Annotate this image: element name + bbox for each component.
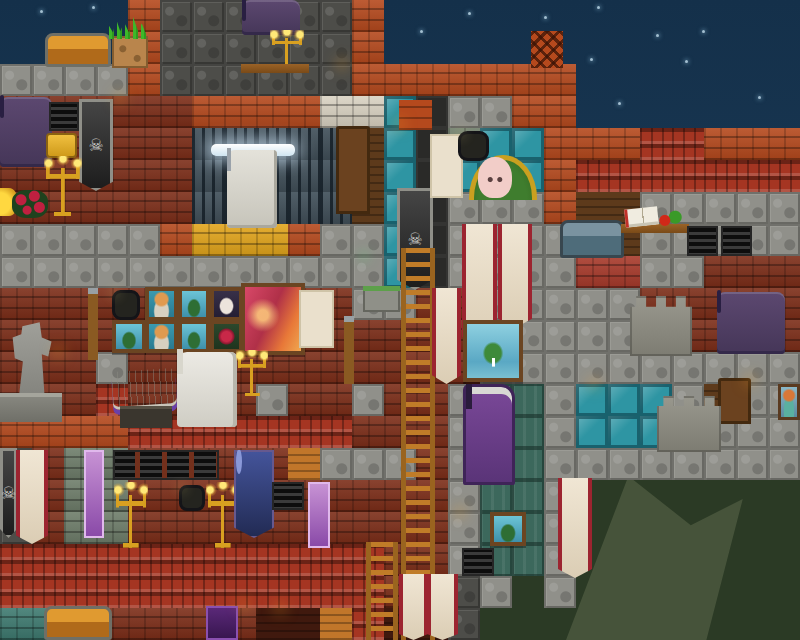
painting-floating-island xyxy=(463,320,523,382)
tile-brick-dark-red xyxy=(160,128,192,160)
tile-stone-block xyxy=(576,288,608,320)
tile-block-red xyxy=(576,256,608,288)
star-11 xyxy=(758,96,761,99)
wall-candelabra-mid xyxy=(236,350,268,396)
tile-stone-block xyxy=(0,224,32,256)
tile-stone-block xyxy=(544,256,576,288)
wooden-chest-bottom[interactable] xyxy=(44,606,112,640)
tile-stone-block xyxy=(0,256,32,288)
tile-stone-block xyxy=(576,448,608,480)
chimney-lattice xyxy=(531,31,563,68)
tile-gold-block xyxy=(224,224,256,256)
workshop-stool xyxy=(275,194,303,226)
tile-roof-shingles xyxy=(640,128,672,160)
tile-cobble-dark xyxy=(192,0,224,32)
tile-wood-beam xyxy=(288,448,320,480)
tile-brick-dark-red xyxy=(288,384,320,416)
tile-gold-block xyxy=(192,224,224,256)
tile-stone-block xyxy=(736,192,768,224)
npc-engineer[interactable] xyxy=(184,164,228,224)
tile-cobble-dark xyxy=(160,32,192,64)
tech-banner-2 xyxy=(308,482,330,548)
rune-banner-1 xyxy=(432,288,461,384)
tile-roof-shingles xyxy=(288,576,320,608)
machine-stand xyxy=(120,406,172,428)
tile-panel-teal xyxy=(512,480,544,512)
torch-bottom-2 xyxy=(280,608,300,640)
glow-mushroom xyxy=(364,256,396,292)
painting-island-1 xyxy=(178,287,210,321)
tile-stone-block xyxy=(544,448,576,480)
tile-stone-block xyxy=(608,448,640,480)
tile-brick-orange xyxy=(480,64,512,96)
tile-brick-orange xyxy=(512,64,544,96)
torch-right-wall xyxy=(750,380,776,420)
dining-chair-left xyxy=(203,46,233,98)
tile-roof-shingles xyxy=(672,128,704,160)
tile-roof-shingles xyxy=(0,544,32,576)
tile-roof-shingles xyxy=(32,576,64,608)
tile-brick-orange xyxy=(576,128,608,160)
tile-stone-block xyxy=(480,576,512,608)
tile-brick-teal xyxy=(0,608,32,640)
tile-gold-block xyxy=(256,224,288,256)
tile-brick-orange xyxy=(608,128,640,160)
tile-roof-shingles xyxy=(96,544,128,576)
tile-brick-orange xyxy=(544,96,576,128)
tile-stone-block xyxy=(576,352,608,384)
tile-cobble-dark xyxy=(160,0,192,32)
torch-dining xyxy=(342,64,366,100)
tile-roof-shingles xyxy=(672,160,704,192)
tile-window-bars xyxy=(288,160,320,192)
tile-panel-teal xyxy=(512,384,544,416)
vent-row xyxy=(113,450,219,480)
tile-stone-block xyxy=(352,448,384,480)
tile-brick-orange xyxy=(160,224,192,256)
star-9 xyxy=(618,102,621,105)
tile-roof-shingles xyxy=(320,544,352,576)
table-candelabra xyxy=(270,30,304,68)
stone-tower-lower xyxy=(657,396,721,452)
tile-roof-shingles xyxy=(736,160,768,192)
tile-stone-block xyxy=(128,256,160,288)
tile-wood-beam xyxy=(320,608,352,640)
tile-stone-block xyxy=(544,320,576,352)
tile-stone-block xyxy=(768,224,800,256)
tile-brick-orange xyxy=(352,32,384,64)
tile-brick-orange xyxy=(544,128,576,160)
tile-roof-shingles xyxy=(96,576,128,608)
tile-brick-dark-red xyxy=(0,288,32,320)
tile-stone-block xyxy=(768,192,800,224)
air-vent-3 xyxy=(721,226,752,256)
tech-banner-1 xyxy=(84,450,104,538)
gold-sign xyxy=(46,133,77,158)
tile-roof-shingles xyxy=(320,576,352,608)
tile-brick-dark-red xyxy=(352,352,384,384)
tile-brick-dark-red xyxy=(96,192,128,224)
tile-stone-block xyxy=(640,352,672,384)
tile-brick-dark-red xyxy=(352,416,384,448)
tile-stone-block xyxy=(96,64,128,96)
tile-stone-block xyxy=(32,224,64,256)
tile-brick-orange xyxy=(64,416,96,448)
tile-stone-block xyxy=(128,224,160,256)
tile-roof-shingles xyxy=(288,416,320,448)
tile-block-red xyxy=(608,256,640,288)
tile-brick-dark-red xyxy=(160,608,192,640)
tile-panel-teal xyxy=(512,416,544,448)
air-vent-2 xyxy=(687,226,718,256)
wall-candelabra-left xyxy=(44,156,82,216)
tile-stone-block xyxy=(544,576,576,608)
tile-stone-block xyxy=(64,224,96,256)
tile-brick-dark-red xyxy=(352,512,384,544)
painting-portrait-1 xyxy=(145,287,178,321)
dirt-block xyxy=(112,36,148,68)
tile-roof-shingles xyxy=(64,544,96,576)
tile-stone-block xyxy=(96,256,128,288)
painting-island-small xyxy=(490,512,526,546)
purple-banner-small xyxy=(206,606,238,640)
tile-stone-block xyxy=(32,256,64,288)
tile-roof-shingles xyxy=(128,544,160,576)
navigation-console[interactable] xyxy=(177,352,237,427)
tile-roof-shingles xyxy=(32,544,64,576)
tile-stone-block xyxy=(608,352,640,384)
torch-statue xyxy=(58,352,80,386)
tile-cobble-dark xyxy=(160,64,192,96)
tile-stone-block xyxy=(352,384,384,416)
air-vent-4 xyxy=(272,482,304,510)
wooden-chest-top[interactable] xyxy=(45,33,111,67)
tile-brick-dark-red xyxy=(128,192,160,224)
tile-roof-shingles xyxy=(576,160,608,192)
wall-tv-big[interactable] xyxy=(717,292,785,354)
painting-rose xyxy=(210,320,243,353)
tile-brick-orange xyxy=(128,64,160,96)
tile-roof-shingles xyxy=(192,576,224,608)
star-6 xyxy=(597,6,600,9)
tile-stone-block xyxy=(736,448,768,480)
dining-table xyxy=(241,64,309,98)
stone-tower-upper xyxy=(630,296,692,356)
tile-stone-block xyxy=(544,416,576,448)
open-book xyxy=(624,206,659,227)
tile-stone-block xyxy=(576,320,608,352)
tile-brick-orange xyxy=(352,0,384,32)
ladder-short[interactable] xyxy=(366,542,398,640)
tile-roof-shingles xyxy=(224,544,256,576)
tile-stone-block xyxy=(352,224,384,256)
pet-bunny[interactable] xyxy=(478,157,512,198)
sawhorse-table-left[interactable] xyxy=(141,512,209,548)
tile-panel-teal xyxy=(512,544,544,576)
tile-roof-shingles xyxy=(256,544,288,576)
tile-stone-block xyxy=(64,256,96,288)
wooden-door-upper[interactable] xyxy=(336,126,370,214)
tile-stone-block xyxy=(672,448,704,480)
fruit-and-plant xyxy=(657,210,683,226)
tile-stone-block xyxy=(768,416,800,448)
hook-pole-2 xyxy=(344,316,354,384)
tile-roof-shingles xyxy=(0,576,32,608)
tile-roof-shingles xyxy=(704,160,736,192)
caged-lantern-3 xyxy=(179,485,205,511)
tile-brick-orange xyxy=(288,224,320,256)
star-8 xyxy=(590,58,593,61)
tile-brick-orange xyxy=(416,64,448,96)
tile-brick-orange xyxy=(768,128,800,160)
tile-roof-shingles xyxy=(64,576,96,608)
painting-island-2 xyxy=(112,320,146,353)
tile-brick-orange xyxy=(256,96,288,128)
tile-brick-orange xyxy=(544,64,576,96)
caged-lantern-2 xyxy=(458,131,489,161)
tile-brick-dark-red xyxy=(768,256,800,288)
tile-brick-dark-red xyxy=(128,160,160,192)
tile-roof-shingles xyxy=(160,576,192,608)
tile-stone-block xyxy=(192,256,224,288)
tile-roof-shingles xyxy=(256,416,288,448)
tile-stone-block xyxy=(672,256,704,288)
torch-upper-left xyxy=(120,98,144,136)
tile-brick-orange xyxy=(448,64,480,96)
tile-stone-block xyxy=(544,288,576,320)
tile-stone-block xyxy=(704,448,736,480)
tile-brick-orange xyxy=(288,96,320,128)
tile-brick-orange xyxy=(384,64,416,96)
torch-bottom-1 xyxy=(244,604,264,638)
tile-brick-dark-red xyxy=(288,352,320,384)
tile-stone-block xyxy=(320,256,352,288)
painting-bunny xyxy=(210,287,243,321)
tile-brick-orange xyxy=(192,96,224,128)
tile-brick-white xyxy=(320,96,352,128)
star-5 xyxy=(544,16,547,19)
dining-chair-right xyxy=(305,46,335,98)
tile-brick-dark-red xyxy=(320,384,352,416)
tile-brick-dark-red xyxy=(704,256,736,288)
tile-stone-block xyxy=(320,448,352,480)
book-machine[interactable] xyxy=(111,368,177,410)
tile-stone-block xyxy=(640,448,672,480)
tile-brick-white xyxy=(352,96,384,128)
tile-roof-shingles xyxy=(608,160,640,192)
tile-roof-shingles xyxy=(640,160,672,192)
tile-brick-orange xyxy=(224,96,256,128)
tile-brick-orange xyxy=(544,160,576,192)
crafting-station[interactable] xyxy=(227,150,277,228)
statue-pedestal xyxy=(0,393,62,422)
tile-roof-shingles xyxy=(192,544,224,576)
air-vent-5 xyxy=(462,548,494,576)
tile-brick-dark-red xyxy=(64,384,96,416)
tile-roof-shingles xyxy=(288,544,320,576)
tile-stone-block xyxy=(448,96,480,128)
star-1 xyxy=(40,10,43,13)
tile-cobble-dark xyxy=(320,0,352,32)
tile-brick-dark-red xyxy=(128,608,160,640)
arcade-cabinet[interactable] xyxy=(463,384,515,485)
tile-stone-block xyxy=(768,448,800,480)
tile-stone-block xyxy=(544,384,576,416)
tile-stone-block xyxy=(32,64,64,96)
star-2 xyxy=(92,6,95,9)
tile-roof-shingles xyxy=(160,544,192,576)
game-viewport xyxy=(0,0,800,640)
tile-brick-orange xyxy=(736,128,768,160)
fancy-chest[interactable] xyxy=(560,220,624,258)
skull-banner-left xyxy=(79,99,113,191)
tile-brick-dark-red xyxy=(736,256,768,288)
tile-stone-block xyxy=(320,224,352,256)
hook-pole-1 xyxy=(88,288,98,360)
tile-roof-shingles xyxy=(768,160,800,192)
tile-stone-block xyxy=(640,256,672,288)
rune-banner-7 xyxy=(427,574,458,640)
air-vent-1 xyxy=(49,102,79,131)
tile-glass-teal xyxy=(512,128,544,160)
rune-banner-3 xyxy=(498,224,532,328)
tile-stone-block xyxy=(704,192,736,224)
tile-brick-orange xyxy=(704,128,736,160)
tile-stone-block xyxy=(160,256,192,288)
tile-stone-block xyxy=(0,64,32,96)
study-table xyxy=(621,224,689,256)
star-10 xyxy=(702,30,705,33)
rune-banner-6 xyxy=(399,574,428,640)
portrait-painting-right xyxy=(778,384,800,420)
rune-banner-4 xyxy=(16,450,48,544)
tile-stone-block xyxy=(672,352,704,384)
tile-stone-block xyxy=(96,224,128,256)
rune-banner-5 xyxy=(558,478,592,578)
tile-brick-dark-red xyxy=(160,96,192,128)
tile-brick-dark-red xyxy=(352,320,384,352)
tile-roof-shingles xyxy=(128,576,160,608)
painting-portrait-2 xyxy=(145,320,178,353)
star-7 xyxy=(656,34,659,37)
tile-panel-teal xyxy=(512,448,544,480)
star-12 xyxy=(685,60,688,63)
player-astronaut[interactable] xyxy=(403,326,437,390)
caged-lantern-1 xyxy=(112,290,140,320)
painting-sunset-large xyxy=(241,283,305,355)
eye-banner xyxy=(234,450,274,538)
tile-glass-teal xyxy=(384,160,416,192)
tile-brick-dark-red xyxy=(352,480,384,512)
skull-banner-bottom xyxy=(0,448,17,538)
rose-bush xyxy=(12,190,48,218)
tile-stone-block xyxy=(64,64,96,96)
tile-stone-block xyxy=(480,96,512,128)
cat-poster-1 xyxy=(299,290,334,348)
torch-shaft xyxy=(399,124,423,162)
star-3 xyxy=(420,30,423,33)
tile-brick-dark-red xyxy=(32,288,64,320)
star-4 xyxy=(468,12,471,15)
tile-brick-orange xyxy=(512,96,544,128)
sawhorse-table-right[interactable] xyxy=(592,416,654,450)
tile-roof-shingles xyxy=(320,416,352,448)
tile-stone-block xyxy=(544,352,576,384)
torch-panel xyxy=(460,512,487,546)
wooden-door-right[interactable] xyxy=(718,378,751,424)
